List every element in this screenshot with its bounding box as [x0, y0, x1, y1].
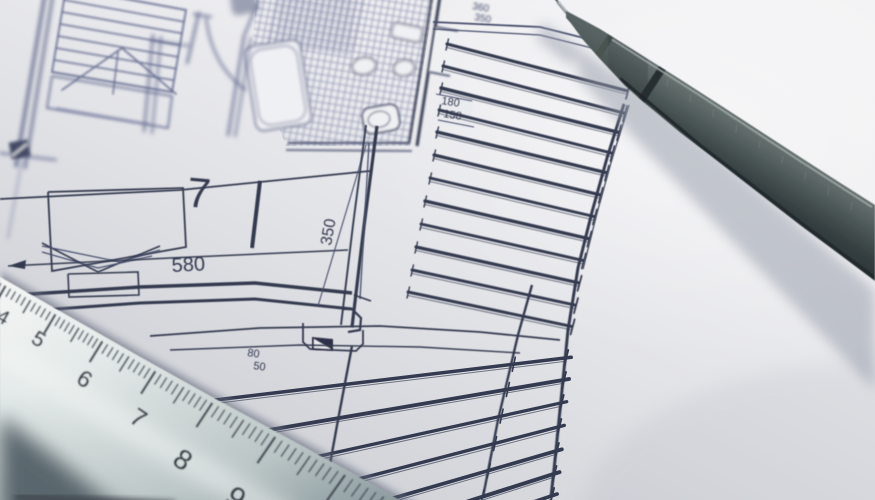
svg-text:50: 50 — [253, 360, 267, 374]
svg-text:80: 80 — [247, 347, 261, 361]
svg-text:580: 580 — [171, 253, 205, 277]
svg-text:7: 7 — [185, 168, 212, 217]
